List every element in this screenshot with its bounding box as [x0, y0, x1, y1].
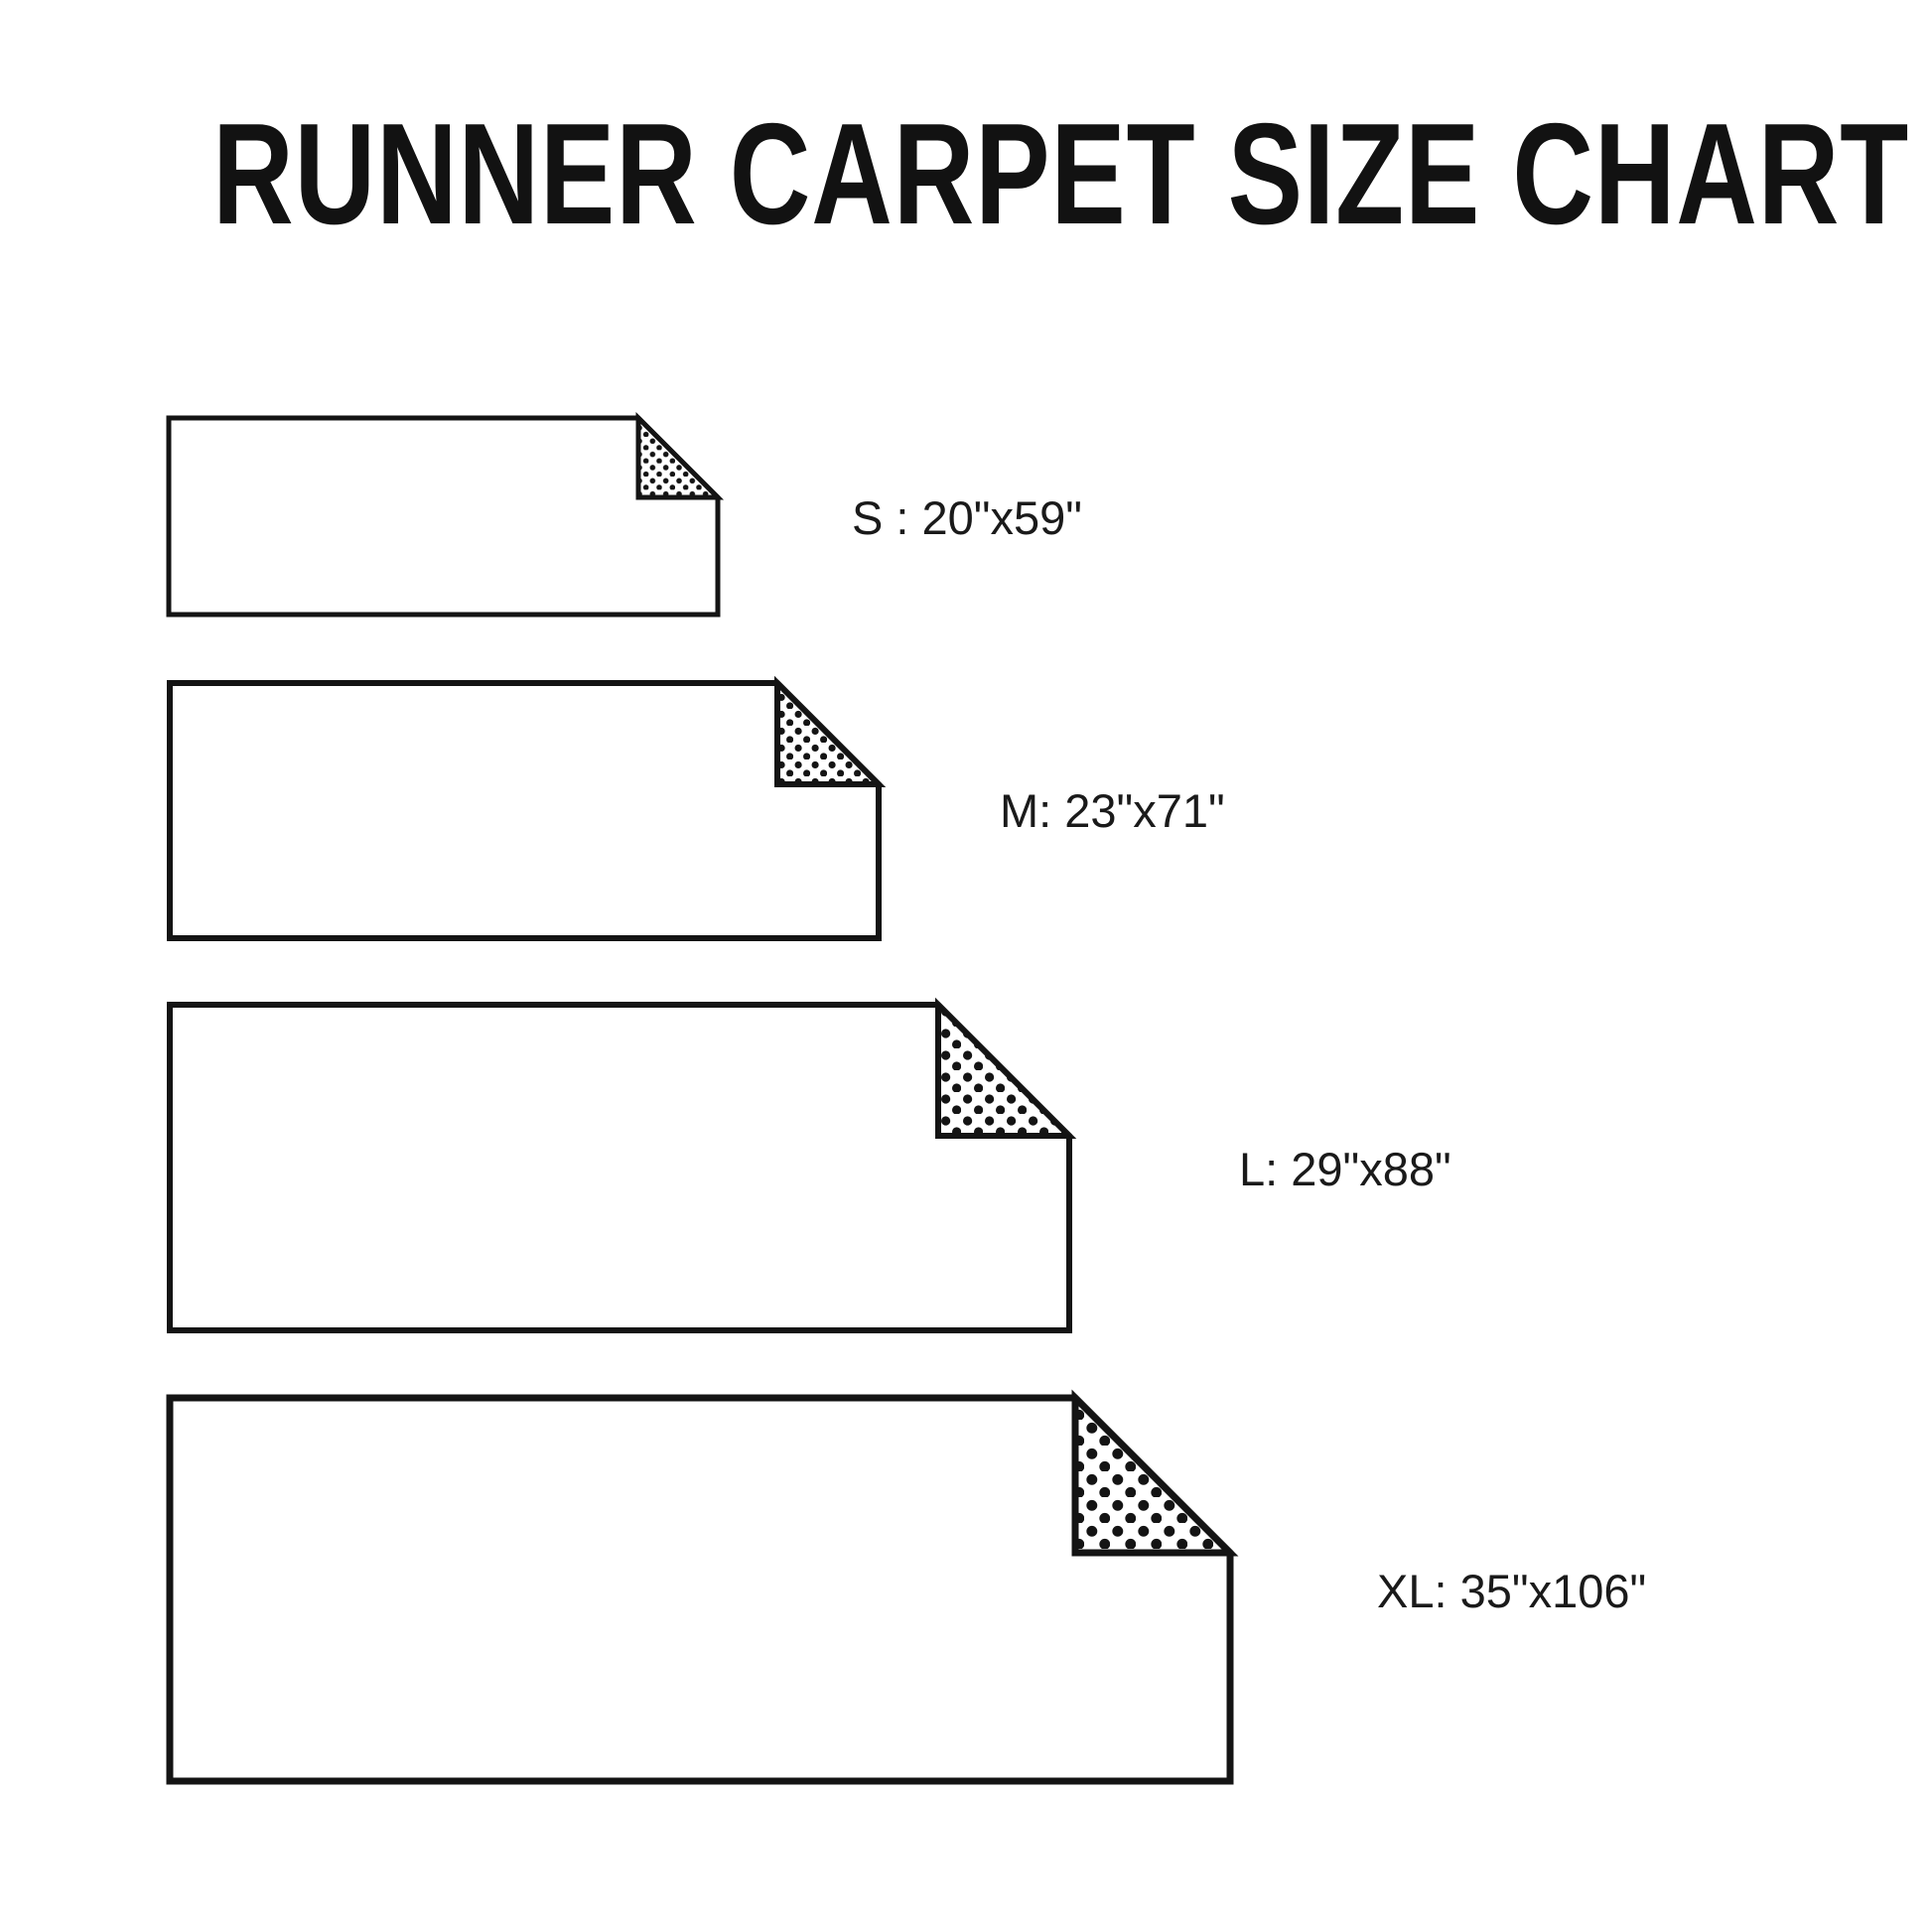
- carpet-shape-xl: [170, 1398, 1230, 1781]
- carpet-outline-xl: [170, 1398, 1230, 1781]
- folded-corner-m: [777, 683, 879, 784]
- size-label-xl: XL: 35"x106": [1377, 1566, 1646, 1617]
- carpet-outline-m: [170, 683, 879, 938]
- carpet-outline-l: [170, 1005, 1069, 1330]
- carpet-diagram: [0, 0, 1932, 1932]
- size-label-m: M: 23"x71": [1000, 785, 1225, 837]
- carpet-shape-s: [169, 418, 718, 615]
- folded-corner-l: [938, 1005, 1069, 1136]
- size-chart-page: RUNNER CARPET SIZE CHART S : 20"x59" M: …: [0, 0, 1932, 1932]
- carpet-shape-m: [170, 683, 879, 938]
- carpet-outline-s: [169, 418, 718, 615]
- folded-corner-xl: [1075, 1398, 1230, 1553]
- size-label-s: S : 20"x59": [852, 492, 1082, 544]
- carpet-shape-l: [170, 1005, 1069, 1330]
- size-label-l: L: 29"x88": [1239, 1144, 1451, 1195]
- folded-corner-s: [638, 418, 718, 497]
